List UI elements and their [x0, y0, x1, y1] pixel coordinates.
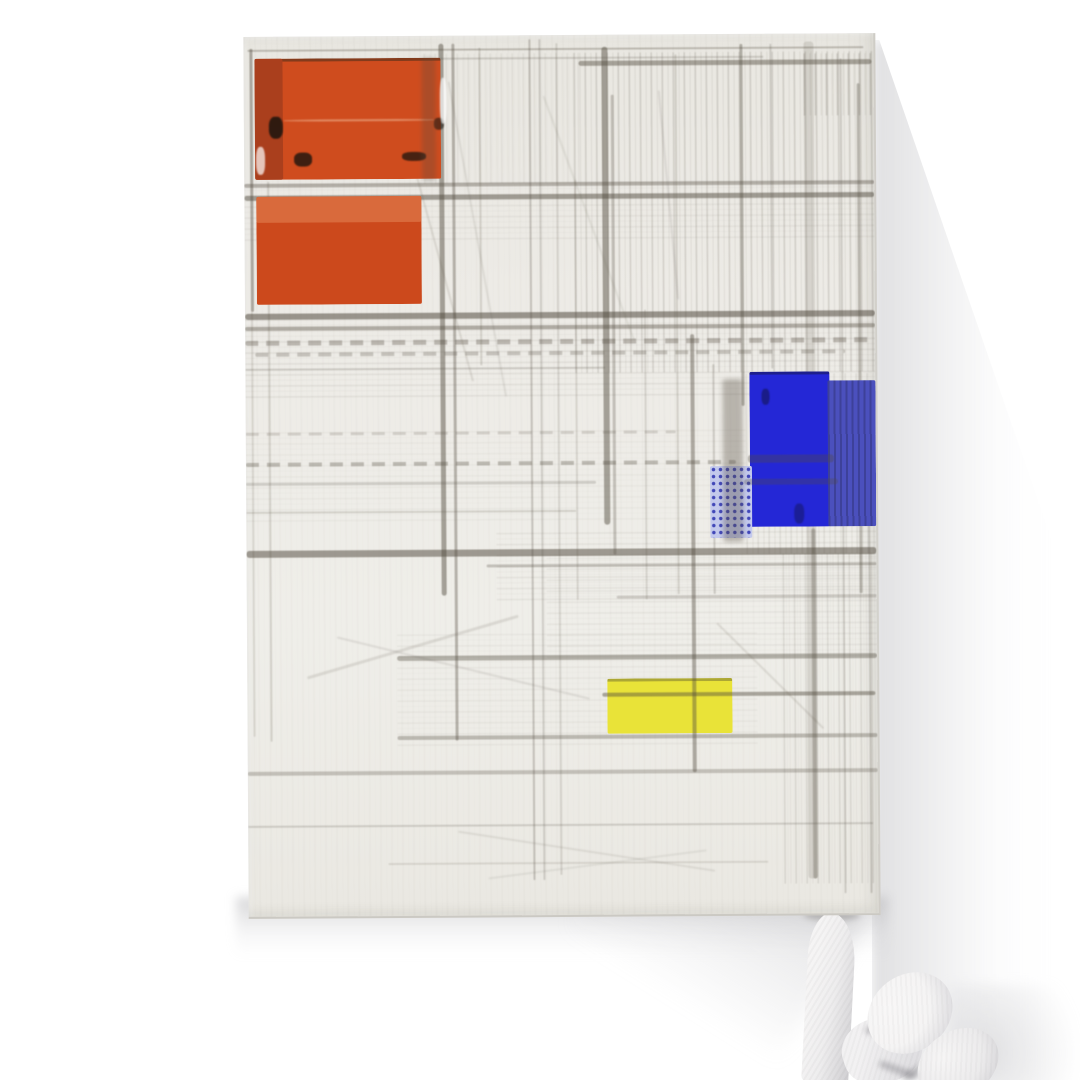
blue-block-right-panel — [827, 380, 876, 526]
charcoal-line — [421, 58, 436, 181]
paint-mark — [794, 504, 804, 524]
charcoal-line — [744, 478, 838, 485]
paint-mark — [294, 153, 312, 167]
paint-mark — [256, 147, 265, 175]
paint-mark — [269, 117, 283, 139]
sculpted-hand — [770, 905, 1050, 1080]
paint-mark — [761, 389, 769, 405]
paint-mark — [440, 78, 447, 124]
art-print — [243, 33, 880, 919]
product-photo-stage — [0, 0, 1080, 1080]
charcoal-smudge — [547, 556, 878, 658]
charcoal-smudge — [423, 53, 584, 184]
red-block-bottom-light-strip — [256, 196, 421, 223]
charcoal-line — [722, 379, 743, 542]
charcoal-smudge — [246, 427, 747, 522]
yellow-block — [607, 678, 732, 734]
artwork-drawing — [243, 33, 878, 917]
charcoal-line — [748, 454, 834, 463]
